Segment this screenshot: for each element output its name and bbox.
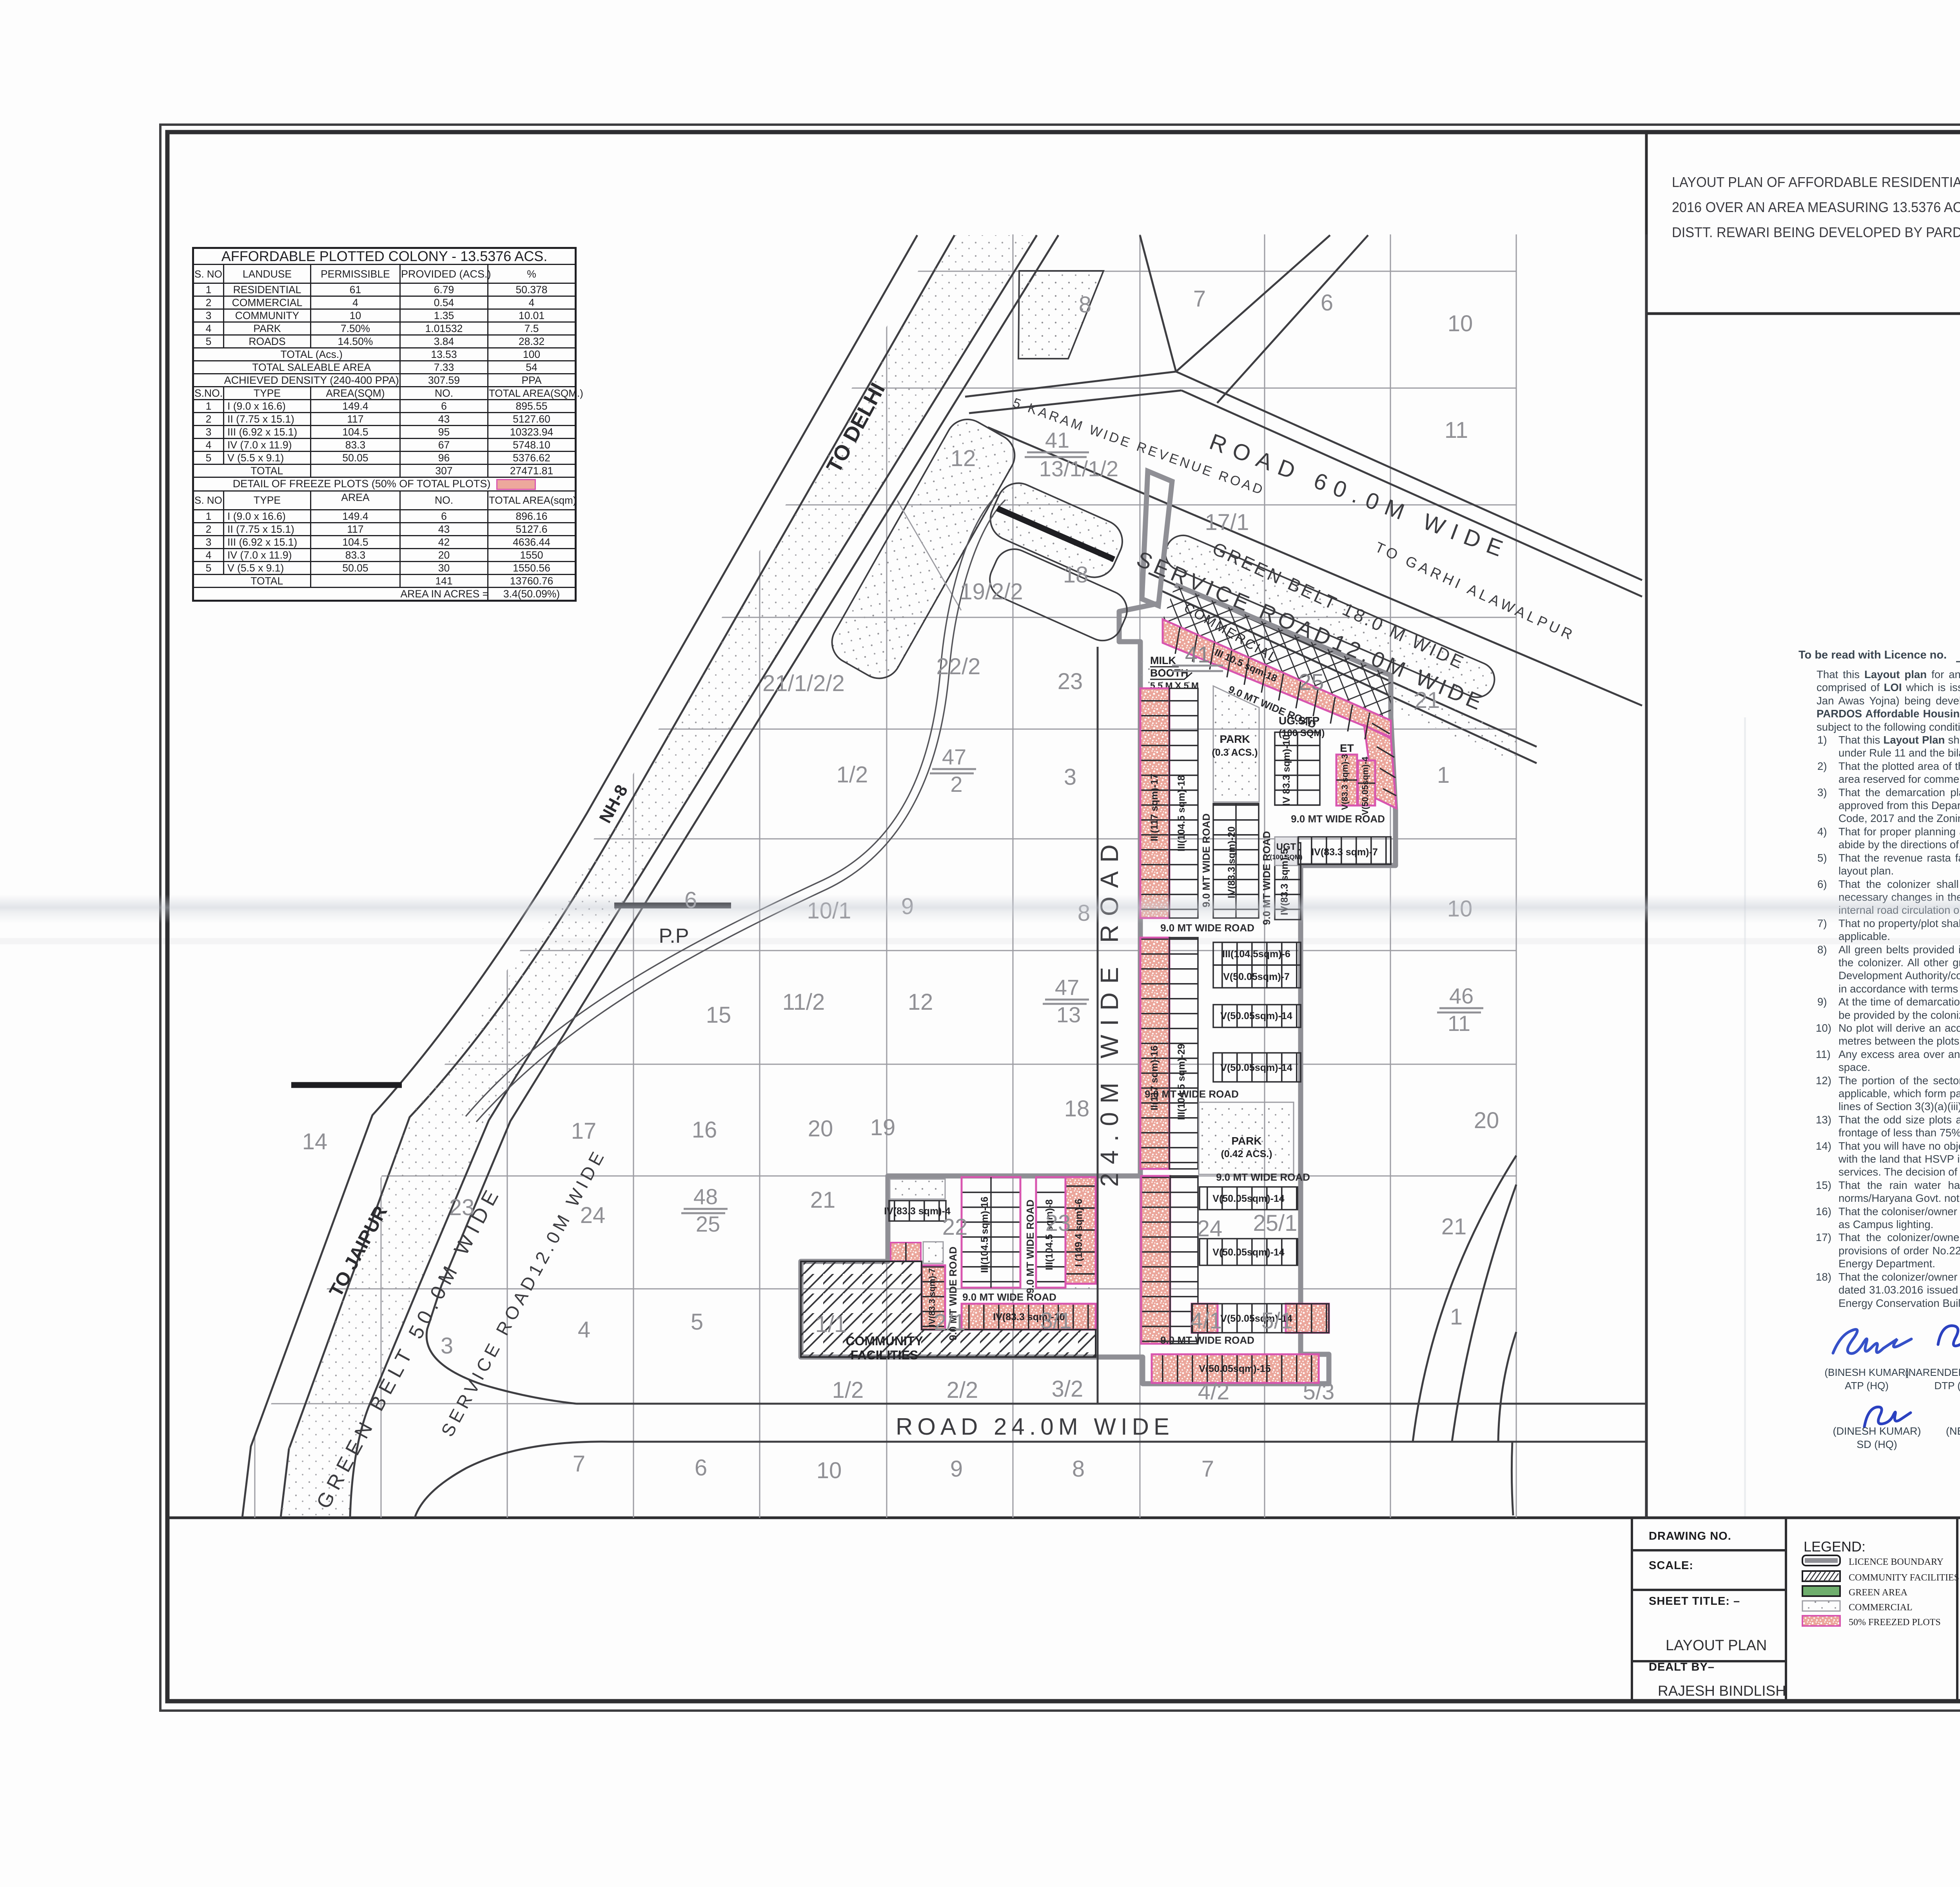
svg-text:17/1: 17/1 bbox=[1205, 510, 1249, 535]
svg-text:COMMUNITY: COMMUNITY bbox=[846, 1334, 923, 1348]
svg-text:25: 25 bbox=[696, 1212, 720, 1236]
svg-text:IV(83.3 sqm)-4: IV(83.3 sqm)-4 bbox=[884, 1206, 951, 1217]
svg-text:9.0 MT WIDE ROAD: 9.0 MT WIDE ROAD bbox=[1291, 813, 1385, 825]
svg-text:FACILITIES: FACILITIES bbox=[851, 1348, 918, 1362]
svg-text:5/3: 5/3 bbox=[1303, 1379, 1335, 1404]
svg-text:DRAWING NO.: DRAWING NO. bbox=[1649, 1530, 1731, 1542]
svg-text:18: 18 bbox=[1064, 1096, 1090, 1121]
svg-text:II(117 sqm)-16: II(117 sqm)-16 bbox=[1149, 1045, 1160, 1110]
svg-text:5/1: 5/1 bbox=[1261, 1308, 1293, 1334]
svg-text:III(104.5 sqm)-18: III(104.5 sqm)-18 bbox=[1176, 775, 1187, 852]
svg-text:IV(83.3 sqm)-20: IV(83.3 sqm)-20 bbox=[1226, 826, 1237, 898]
svg-text:UG.STP: UG.STP bbox=[1279, 715, 1319, 727]
svg-text:11/2: 11/2 bbox=[782, 989, 825, 1015]
svg-text:V(50.05sqm)-14: V(50.05sqm)-14 bbox=[1220, 1062, 1292, 1073]
svg-text:11: 11 bbox=[1445, 417, 1468, 443]
svg-text:41: 41 bbox=[1185, 642, 1210, 668]
svg-text:LAYOUT PLAN: LAYOUT PLAN bbox=[1666, 1637, 1767, 1654]
svg-text:1/2: 1/2 bbox=[832, 1377, 864, 1403]
svg-text:8: 8 bbox=[1072, 1456, 1085, 1482]
svg-text:4: 4 bbox=[578, 1317, 590, 1343]
svg-text:18: 18 bbox=[1063, 562, 1089, 588]
svg-text:LEGEND:: LEGEND: bbox=[1804, 1539, 1866, 1555]
svg-text:DTP (HQ): DTP (HQ) bbox=[1934, 1380, 1960, 1392]
svg-text:7: 7 bbox=[1193, 286, 1206, 312]
svg-text:24: 24 bbox=[580, 1203, 606, 1228]
svg-text:I (149.4 sqm)-6: I (149.4 sqm)-6 bbox=[1073, 1199, 1084, 1267]
svg-text:IV 83.3 sqm)-10: IV 83.3 sqm)-10 bbox=[1281, 735, 1292, 806]
svg-text:47: 47 bbox=[1055, 975, 1079, 1000]
svg-text:SD (HQ): SD (HQ) bbox=[1857, 1439, 1897, 1450]
svg-text:12: 12 bbox=[951, 446, 976, 471]
svg-text:SHEET TITLE: –: SHEET TITLE: – bbox=[1649, 1595, 1740, 1608]
svg-text:(NEHA CHANDEL): (NEHA CHANDEL) bbox=[1946, 1425, 1960, 1437]
svg-text:V(50.05sqm)-4: V(50.05sqm)-4 bbox=[1360, 757, 1370, 815]
svg-text:V(50.05sqm)-15: V(50.05sqm)-15 bbox=[1199, 1363, 1271, 1374]
svg-text:7: 7 bbox=[573, 1451, 585, 1477]
svg-text:15: 15 bbox=[706, 1002, 731, 1028]
svg-text:20: 20 bbox=[1474, 1108, 1499, 1133]
svg-text:1/2: 1/2 bbox=[837, 762, 868, 787]
svg-text:V(50.05sqm)-14: V(50.05sqm)-14 bbox=[1212, 1193, 1285, 1204]
svg-text:DEALT BY–: DEALT BY– bbox=[1649, 1661, 1715, 1673]
svg-text:3/2: 3/2 bbox=[1052, 1376, 1083, 1402]
svg-text:(DINESH KUMAR): (DINESH KUMAR) bbox=[1833, 1425, 1921, 1437]
svg-text:ATP (HQ): ATP (HQ) bbox=[1845, 1380, 1889, 1392]
svg-text:7: 7 bbox=[1201, 1456, 1214, 1482]
svg-text:22/2: 22/2 bbox=[936, 654, 981, 679]
svg-text:24.0M WIDE ROAD: 24.0M WIDE ROAD bbox=[1095, 836, 1123, 1187]
svg-text:(100 SQM): (100 SQM) bbox=[1279, 728, 1325, 738]
svg-text:II (117 sqm)-17: II (117 sqm)-17 bbox=[1149, 774, 1160, 841]
svg-text:(NARENDER KUMAR): (NARENDER KUMAR) bbox=[1905, 1366, 1960, 1378]
svg-text:(0.42 ACS.): (0.42 ACS.) bbox=[1221, 1149, 1272, 1159]
svg-text:IV(83.3 sqm)-7: IV(83.3 sqm)-7 bbox=[1311, 847, 1378, 858]
svg-text:III(104.5 sqm)-29: III(104.5 sqm)-29 bbox=[1176, 1044, 1187, 1120]
svg-text:3: 3 bbox=[1064, 764, 1076, 790]
svg-text:10: 10 bbox=[817, 1458, 842, 1483]
svg-text:50% FREEZED PLOTS: 50% FREEZED PLOTS bbox=[1849, 1617, 1941, 1628]
svg-text:12: 12 bbox=[908, 989, 933, 1015]
svg-text:17: 17 bbox=[571, 1118, 597, 1144]
svg-text:PARK: PARK bbox=[1231, 1135, 1261, 1147]
svg-text:P.P: P.P bbox=[659, 925, 689, 947]
svg-text:2/1: 2/1 bbox=[934, 1310, 966, 1335]
svg-text:BOOTH: BOOTH bbox=[1150, 667, 1189, 679]
svg-text:9: 9 bbox=[950, 1456, 963, 1482]
svg-text:23: 23 bbox=[449, 1195, 475, 1220]
svg-text:9.0 MT WIDE ROAD: 9.0 MT WIDE ROAD bbox=[1200, 813, 1212, 907]
svg-text:9.0 MT WIDE ROAD: 9.0 MT WIDE ROAD bbox=[1160, 922, 1254, 934]
svg-text:LICENCE BOUNDARY: LICENCE BOUNDARY bbox=[1849, 1557, 1944, 1567]
svg-text:To be read with Licence no.: To be read with Licence no. bbox=[1798, 649, 1947, 661]
svg-text:20: 20 bbox=[808, 1116, 833, 1141]
svg-text:3: 3 bbox=[441, 1333, 453, 1359]
svg-text:10: 10 bbox=[1448, 311, 1473, 336]
svg-text:21: 21 bbox=[1441, 1214, 1467, 1239]
svg-text:3/1: 3/1 bbox=[1040, 1308, 1072, 1334]
svg-text:RAJESH BINDLISH: RAJESH BINDLISH bbox=[1658, 1683, 1786, 1699]
svg-text:23: 23 bbox=[1045, 1210, 1071, 1236]
svg-text:24: 24 bbox=[1197, 1216, 1223, 1241]
svg-text:21: 21 bbox=[1415, 688, 1440, 713]
svg-text:COMMUNITY FACILITIES: COMMUNITY FACILITIES bbox=[1849, 1573, 1959, 1583]
svg-text:6: 6 bbox=[695, 1455, 707, 1481]
svg-text:9.0 MT WIDE ROAD: 9.0 MT WIDE ROAD bbox=[1160, 1334, 1254, 1346]
svg-text:(BINESH KUMAR): (BINESH KUMAR) bbox=[1824, 1366, 1909, 1378]
svg-text:47: 47 bbox=[942, 744, 966, 769]
svg-text:5: 5 bbox=[691, 1309, 703, 1335]
svg-text:1: 1 bbox=[1450, 1304, 1463, 1330]
svg-text:23: 23 bbox=[1058, 669, 1083, 694]
svg-text:2: 2 bbox=[950, 772, 962, 797]
svg-text:2/2: 2/2 bbox=[947, 1377, 978, 1403]
svg-text:V(50.05sqm)-14: V(50.05sqm)-14 bbox=[1220, 1011, 1292, 1022]
svg-text:48: 48 bbox=[693, 1184, 718, 1209]
svg-text:ROAD 60.0M WIDE: ROAD 60.0M WIDE bbox=[1206, 429, 1514, 564]
svg-text:11: 11 bbox=[1448, 1011, 1470, 1036]
svg-text:III(104.5 sqm)-16: III(104.5 sqm)-16 bbox=[979, 1197, 990, 1273]
svg-text:8: 8 bbox=[1079, 292, 1091, 318]
svg-text:19: 19 bbox=[870, 1115, 896, 1140]
svg-text:4/2: 4/2 bbox=[1198, 1379, 1230, 1404]
svg-text:1: 1 bbox=[1437, 762, 1450, 788]
svg-text:13/1/1/2: 13/1/1/2 bbox=[1039, 456, 1118, 481]
svg-text:PARK: PARK bbox=[1220, 733, 1250, 745]
svg-text:III(104.5sqm)-6: III(104.5sqm)-6 bbox=[1222, 949, 1290, 960]
svg-text:SCALE:: SCALE: bbox=[1649, 1559, 1693, 1572]
svg-text:(0.3 ACS.): (0.3 ACS.) bbox=[1212, 747, 1258, 758]
svg-text:16: 16 bbox=[692, 1117, 717, 1143]
svg-text:V(83.3 sqm)-3: V(83.3 sqm)-3 bbox=[1340, 754, 1350, 810]
svg-text:9.0 MT WIDE ROAD: 9.0 MT WIDE ROAD bbox=[1216, 1171, 1310, 1183]
svg-text:V(50.05sqm)-14: V(50.05sqm)-14 bbox=[1212, 1247, 1285, 1258]
svg-text:4/1: 4/1 bbox=[1191, 1308, 1222, 1334]
svg-text:19/2/2: 19/2/2 bbox=[960, 579, 1023, 604]
svg-text:13: 13 bbox=[1056, 1002, 1081, 1027]
svg-text:(100 SQM): (100 SQM) bbox=[1270, 853, 1302, 861]
svg-text:46: 46 bbox=[1449, 983, 1474, 1008]
svg-text:UGT: UGT bbox=[1276, 842, 1296, 852]
svg-text:22: 22 bbox=[942, 1214, 968, 1240]
svg-text:25/1: 25/1 bbox=[1253, 1210, 1298, 1236]
svg-text:1/1: 1/1 bbox=[815, 1312, 847, 1337]
svg-text:21: 21 bbox=[810, 1187, 836, 1213]
svg-text:ROAD 24.0M WIDE: ROAD 24.0M WIDE bbox=[896, 1413, 1174, 1440]
svg-text:9.0 MT WIDE ROAD: 9.0 MT WIDE ROAD bbox=[1024, 1199, 1036, 1294]
svg-text:9.0 MT WIDE ROAD: 9.0 MT WIDE ROAD bbox=[962, 1291, 1056, 1303]
svg-text:21/1/2/2: 21/1/2/2 bbox=[762, 671, 845, 696]
svg-text:V(50.05sqm)-7: V(50.05sqm)-7 bbox=[1223, 971, 1290, 982]
svg-text:14: 14 bbox=[302, 1129, 328, 1154]
svg-text:COMMERCIAL: COMMERCIAL bbox=[1849, 1602, 1913, 1613]
svg-text:41: 41 bbox=[1045, 428, 1069, 452]
svg-text:ET: ET bbox=[1340, 742, 1354, 754]
svg-text:25: 25 bbox=[1299, 670, 1324, 695]
svg-text:GREEN AREA: GREEN AREA bbox=[1849, 1588, 1908, 1598]
svg-text:6: 6 bbox=[1321, 290, 1333, 316]
